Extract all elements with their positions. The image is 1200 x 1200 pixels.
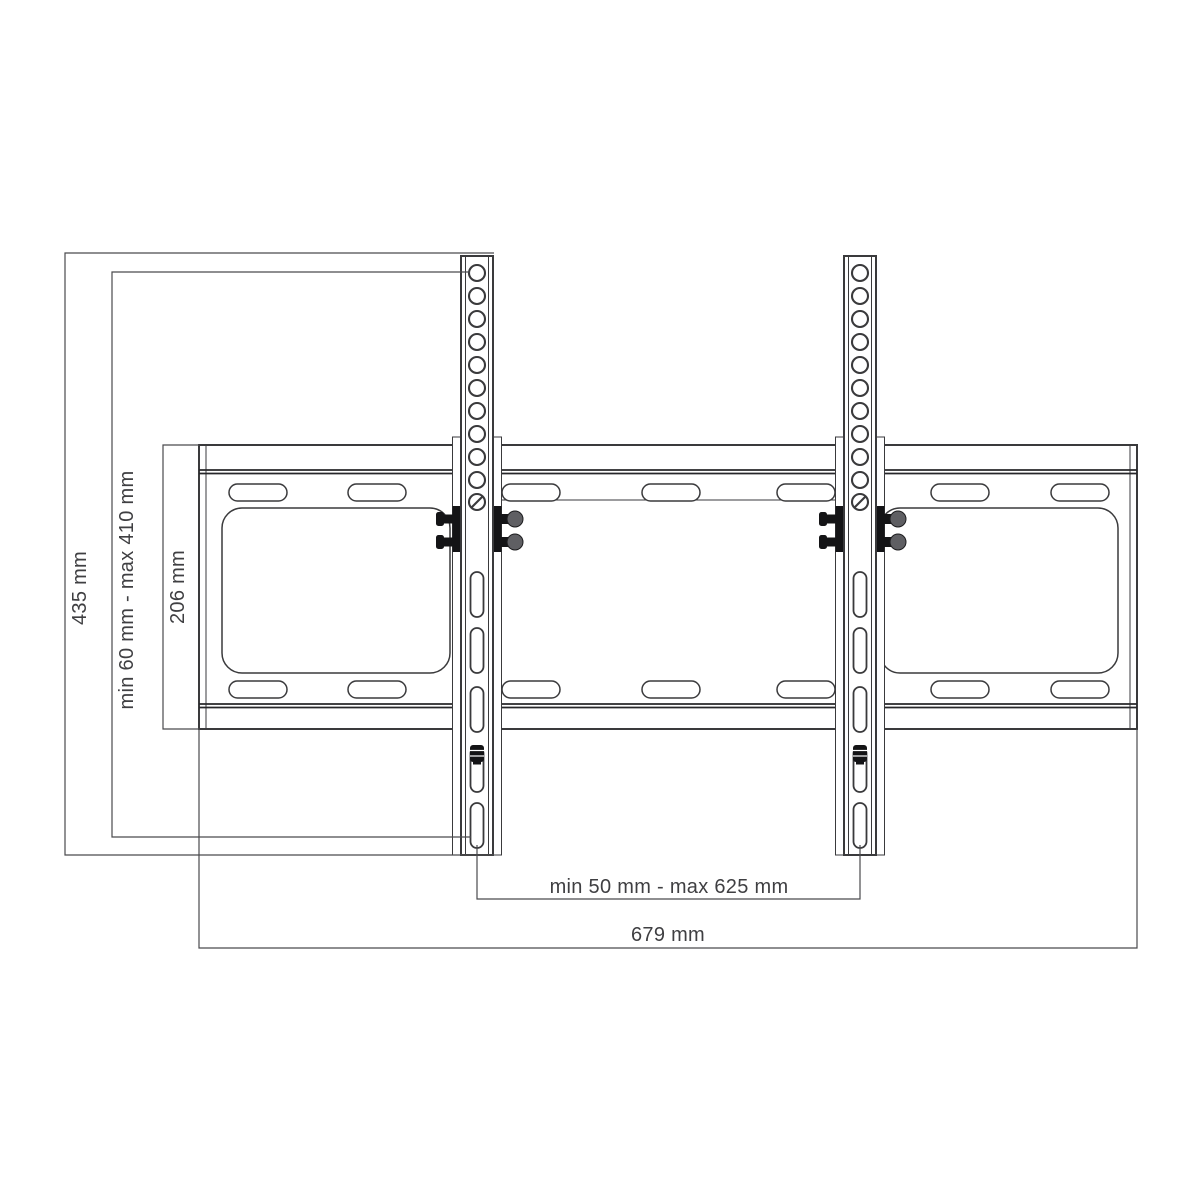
total-height-label: 435 mm (69, 551, 91, 625)
wall-plate-height-label: 206 mm (167, 550, 189, 624)
vesa-vertical-range-label: min 60 mm - max 410 mm (116, 471, 138, 710)
wall-slot-row-top (229, 484, 1109, 501)
total-width-label: 679 mm (631, 924, 705, 946)
technical-drawing-canvas: 435 mm min 60 mm - max 410 mm 206 mm min… (0, 0, 1200, 1200)
tv-wall-mount-diagram: 435 mm min 60 mm - max 410 mm 206 mm min… (0, 0, 1200, 1200)
wall-plate (199, 445, 1137, 729)
dim-total-width-lines (199, 729, 1137, 948)
wall-slot-row-bottom (229, 681, 1109, 698)
vesa-horizontal-range-label: min 50 mm - max 625 mm (550, 876, 789, 898)
